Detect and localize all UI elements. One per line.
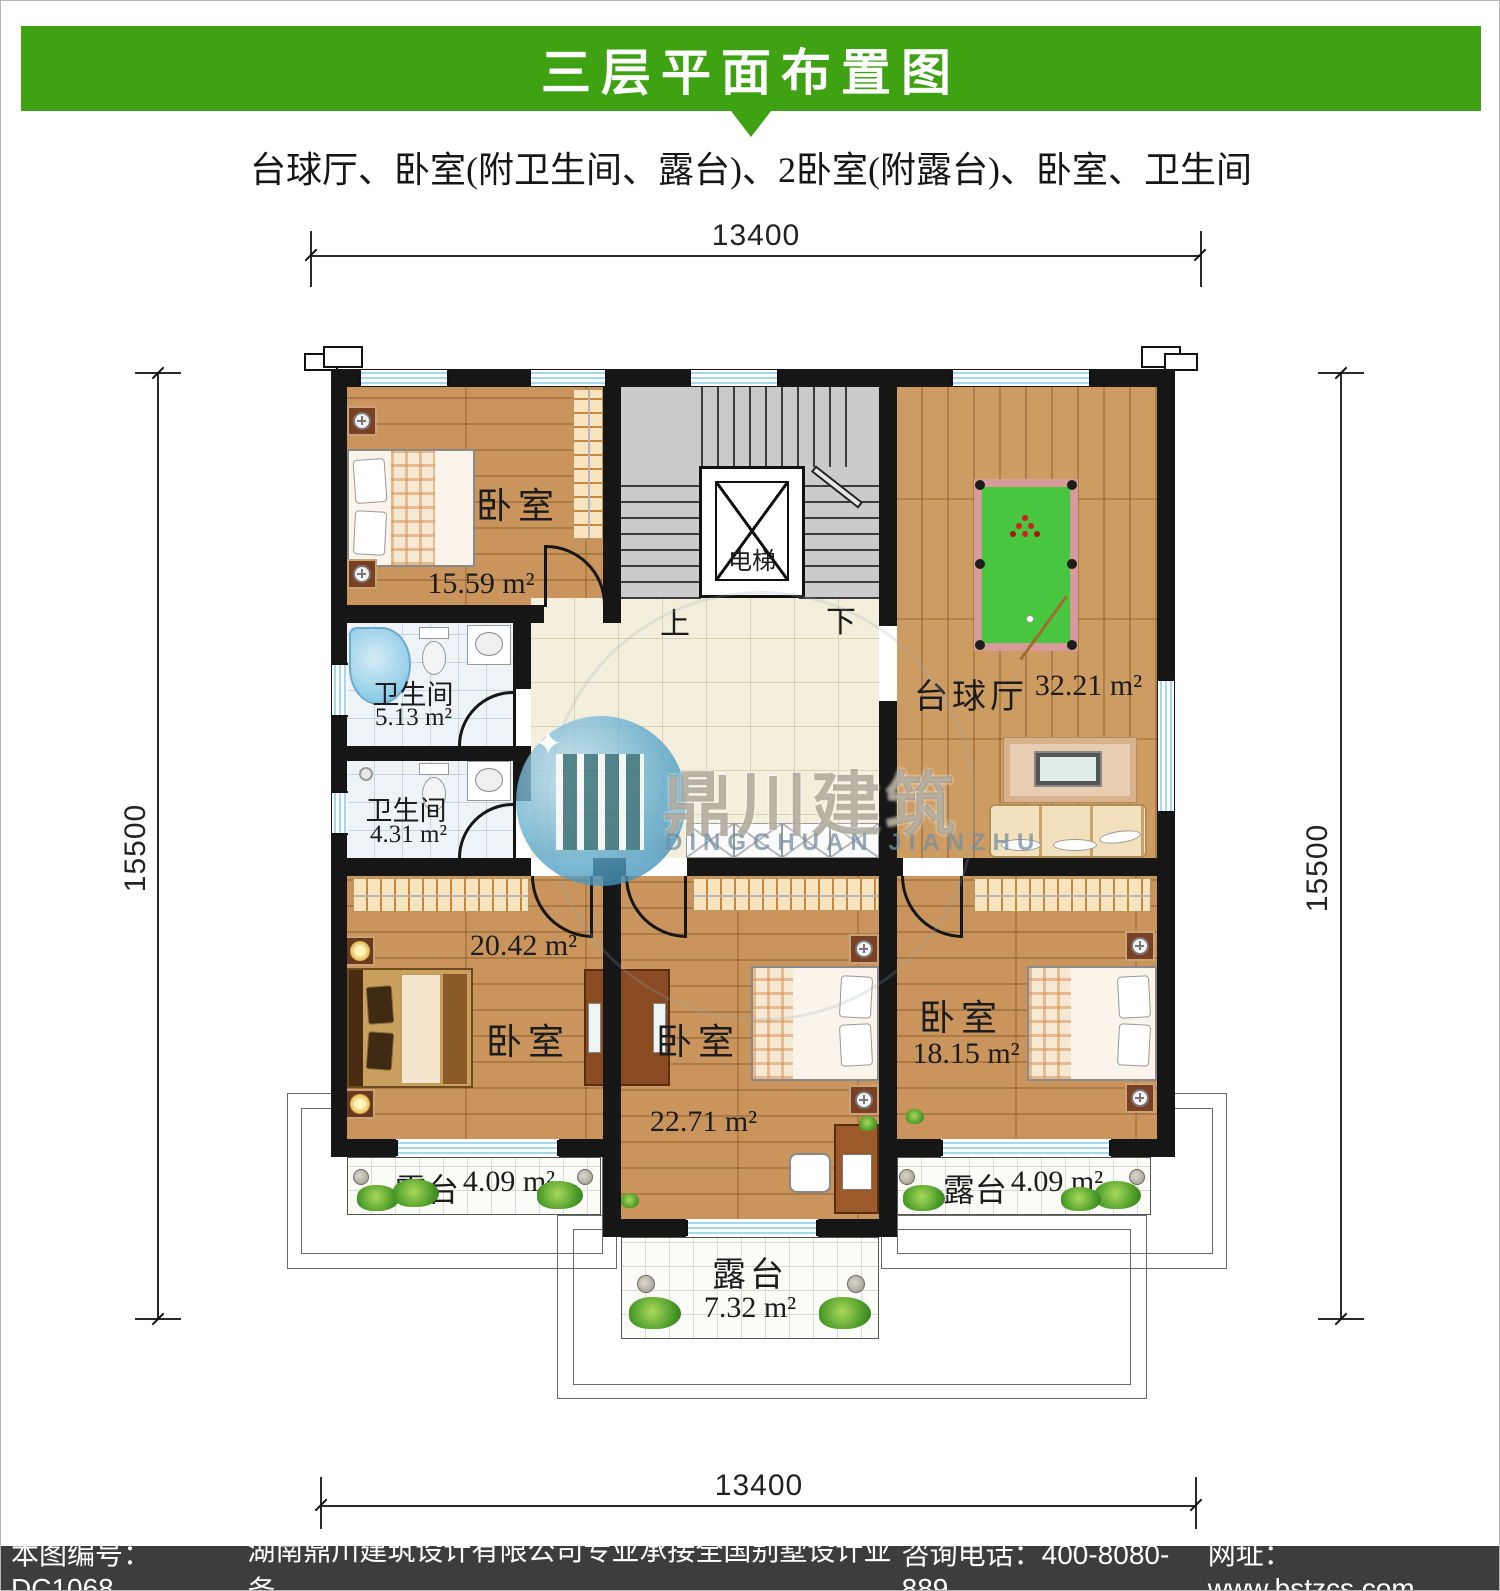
plant <box>621 1193 639 1208</box>
floor-drain <box>359 767 373 781</box>
nightstand-lamp <box>345 936 375 966</box>
pillow <box>1117 975 1151 1019</box>
bedroom-right-area: 18.15 m² <box>901 1037 1031 1071</box>
billiard-balls <box>1022 515 1028 521</box>
stair-treads-top <box>701 387 861 467</box>
blanket <box>391 451 435 565</box>
plant <box>393 1179 439 1207</box>
desk-chair <box>789 1153 831 1193</box>
plant <box>903 1185 945 1211</box>
sparkle-icon: ✦ <box>534 724 563 764</box>
window <box>396 1140 559 1156</box>
blanket-fold <box>443 974 467 1084</box>
dim-line-top <box>311 255 1201 257</box>
elevator-shaft <box>699 466 805 598</box>
wall <box>559 1139 603 1157</box>
nightstand-top <box>1131 937 1149 955</box>
pool-table <box>974 479 1078 651</box>
bedroom-left-label: 卧室 <box>466 1013 590 1065</box>
window <box>332 791 348 835</box>
pillow <box>366 985 395 1025</box>
bedroom-mid-label: 卧室 <box>636 1013 760 1065</box>
corner-deco <box>323 346 363 368</box>
plant <box>859 1116 877 1131</box>
wall <box>603 369 621 623</box>
elevator-label: 电梯 <box>699 541 805 576</box>
toilet-tank <box>419 763 449 775</box>
planter-pot <box>577 1169 593 1185</box>
window <box>686 1220 818 1236</box>
coffee-table <box>1036 753 1100 785</box>
dim-value-bottom: 13400 <box>659 1469 859 1503</box>
footer-plan-number: 本图编号：DC1068 <box>11 1533 247 1591</box>
bathroom-upper-area: 5.13 m² <box>356 704 471 732</box>
door-leaf <box>544 545 547 607</box>
nightstand <box>347 406 377 436</box>
plant <box>906 1109 924 1124</box>
wall <box>513 623 531 689</box>
tv-screen <box>588 1003 601 1053</box>
nightstand <box>1125 1083 1155 1113</box>
banner-arrow-icon <box>731 111 771 137</box>
pool-pocket <box>1067 640 1077 650</box>
page-title: 三层平面布置图 <box>541 33 961 105</box>
wall <box>331 1139 396 1157</box>
dim-line-bottom <box>321 1505 1197 1507</box>
window <box>951 370 1091 386</box>
wall <box>603 1219 686 1237</box>
watermark-logo: ✦ <box>516 716 686 886</box>
page-subtitle: 台球厅、卧室(附卫生间、露台)、2卧室(附露台)、卧室、卫生间 <box>1 141 1500 193</box>
wall <box>1111 1139 1175 1157</box>
pillow <box>1117 1023 1151 1067</box>
footer-website: 网址：www.bstzcs.com <box>1208 1533 1491 1591</box>
wall <box>331 369 347 1157</box>
dim-value-top: 13400 <box>656 219 856 253</box>
wall <box>879 369 897 626</box>
sink-basin <box>475 632 503 656</box>
lamp-glow <box>350 1094 370 1114</box>
wardrobe <box>353 878 529 912</box>
pool-pocket <box>975 640 985 650</box>
planter-pot <box>1129 1169 1145 1185</box>
pool-pocket <box>975 559 985 569</box>
wall <box>331 605 544 623</box>
wall <box>897 1139 941 1157</box>
pillow <box>839 1023 873 1067</box>
dim-value-left: 15500 <box>119 783 153 913</box>
wall <box>963 858 1175 876</box>
plant <box>537 1181 583 1209</box>
nightstand-top <box>855 1091 873 1109</box>
nightstand-top <box>353 565 371 583</box>
blanket <box>1029 968 1071 1079</box>
pool-pocket <box>1067 480 1077 490</box>
desk-monitor <box>842 1154 872 1190</box>
nightstand-lamp <box>345 1089 375 1119</box>
pool-pocket <box>975 480 985 490</box>
window <box>332 663 348 717</box>
title-banner: 三层平面布置图 <box>21 26 1481 111</box>
terrace-bottom-area: 7.32 m² <box>687 1291 813 1325</box>
watermark-en: DINGCHUAN JIANZHU <box>665 829 1041 857</box>
window <box>1158 679 1174 813</box>
nightstand <box>849 1085 879 1115</box>
cue-ball <box>1026 615 1034 623</box>
blanket <box>401 974 441 1084</box>
window <box>529 370 607 386</box>
door-leaf <box>513 689 516 746</box>
bed <box>347 968 473 1088</box>
dim-ext <box>310 231 312 287</box>
pool-pocket <box>1067 559 1077 569</box>
sink-basin <box>475 768 503 792</box>
building-glyph-icon <box>556 754 644 850</box>
floor-plan-page: 三层平面布置图 台球厅、卧室(附卫生间、露台)、2卧室(附露台)、卧室、卫生间 … <box>0 0 1500 1591</box>
headboard <box>349 970 363 1086</box>
wardrobe-rail <box>588 390 590 538</box>
dim-ext <box>1200 231 1202 287</box>
window <box>689 370 779 386</box>
plant <box>1095 1181 1141 1209</box>
bedroom-top-area: 15.59 m² <box>416 567 546 601</box>
wardrobe-rail <box>354 895 528 897</box>
bed <box>1027 966 1157 1081</box>
sofa-cushion <box>1053 839 1097 851</box>
footer-company: 湖南鼎川建筑设计有限公司专业承接全国别墅设计业务 <box>247 1529 901 1591</box>
wall <box>331 746 513 761</box>
dim-line-right <box>1340 373 1342 1319</box>
desk <box>834 1124 879 1214</box>
planter-pot <box>899 1169 915 1185</box>
toilet-tank <box>419 627 449 639</box>
window <box>941 1140 1111 1156</box>
lamp-glow <box>350 941 370 961</box>
terrace-right-label: 露台 <box>943 1165 1007 1211</box>
planter-pot <box>353 1169 369 1185</box>
bedroom-right-label: 卧室 <box>899 989 1023 1041</box>
bathroom-lower-area: 4.31 m² <box>351 821 466 849</box>
toilet-bowl <box>422 641 446 675</box>
terrace-bottom-label: 露台 <box>685 1247 815 1296</box>
pillow <box>366 1031 395 1071</box>
wardrobe <box>974 878 1151 912</box>
wardrobe-rail <box>975 895 1150 897</box>
nightstand-top <box>1131 1089 1149 1107</box>
pillow <box>353 458 388 504</box>
plant <box>1061 1187 1101 1211</box>
window <box>359 370 449 386</box>
bedroom-mid-area: 22.71 m² <box>636 1105 771 1139</box>
plant <box>629 1297 681 1329</box>
dim-line-left <box>157 373 159 1319</box>
plant <box>819 1297 871 1329</box>
planter-pot <box>847 1275 865 1293</box>
stair-treads-left <box>621 471 701 599</box>
nightstand-top <box>353 412 371 430</box>
nightstand <box>1125 931 1155 961</box>
bedroom-top-label: 卧室 <box>456 477 580 529</box>
nightstand <box>347 559 377 589</box>
billiard-area: 32.21 m² <box>1026 669 1151 703</box>
pillow <box>353 510 387 556</box>
footer-phone: 咨询电话：400-8080-889 <box>902 1533 1208 1591</box>
footer-bar: 本图编号：DC1068 湖南鼎川建筑设计有限公司专业承接全国别墅设计业务 咨询电… <box>1 1546 1500 1591</box>
dim-value-right: 15500 <box>1301 803 1335 933</box>
planter-pot <box>637 1275 655 1293</box>
wall <box>818 1219 897 1237</box>
wall <box>331 858 531 876</box>
